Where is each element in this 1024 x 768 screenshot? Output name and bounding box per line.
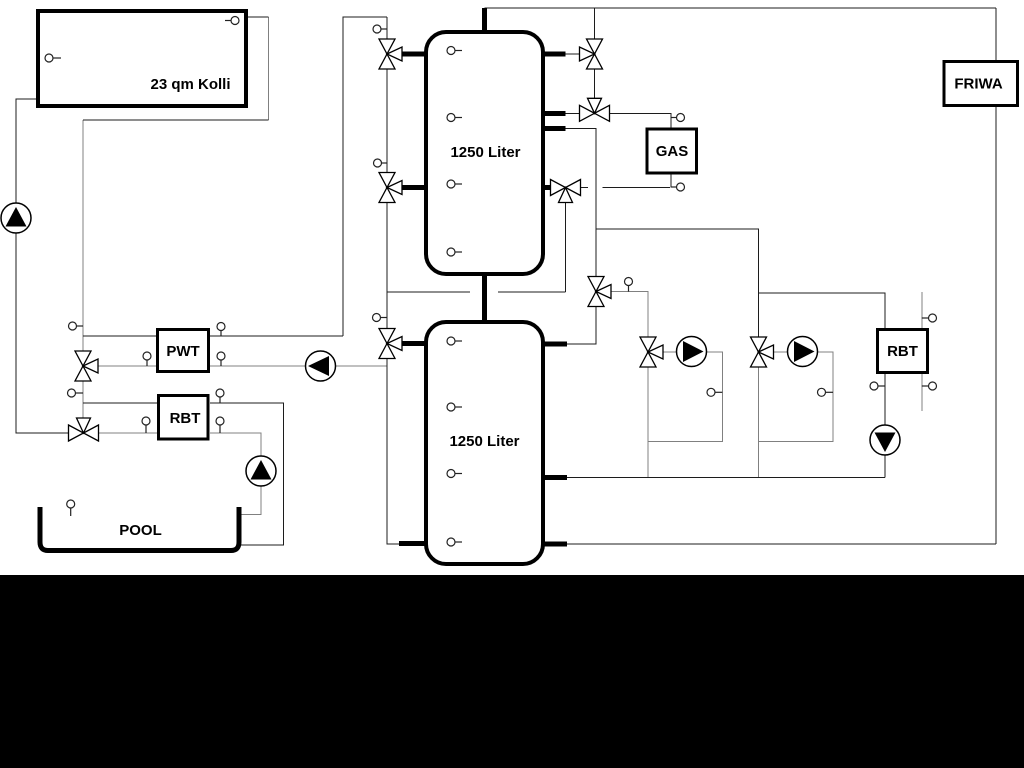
svg-text:23 qm Kolli: 23 qm Kolli (150, 76, 230, 93)
svg-text:GAS: GAS (656, 143, 689, 160)
svg-text:1250 Liter: 1250 Liter (449, 433, 519, 450)
svg-text:RBT: RBT (170, 410, 201, 427)
svg-text:FRIWA: FRIWA (954, 76, 1002, 93)
svg-text:POOL: POOL (119, 522, 162, 539)
svg-text:RBT: RBT (887, 343, 918, 360)
svg-text:PWT: PWT (166, 343, 199, 360)
svg-text:1250 Liter: 1250 Liter (450, 144, 520, 161)
